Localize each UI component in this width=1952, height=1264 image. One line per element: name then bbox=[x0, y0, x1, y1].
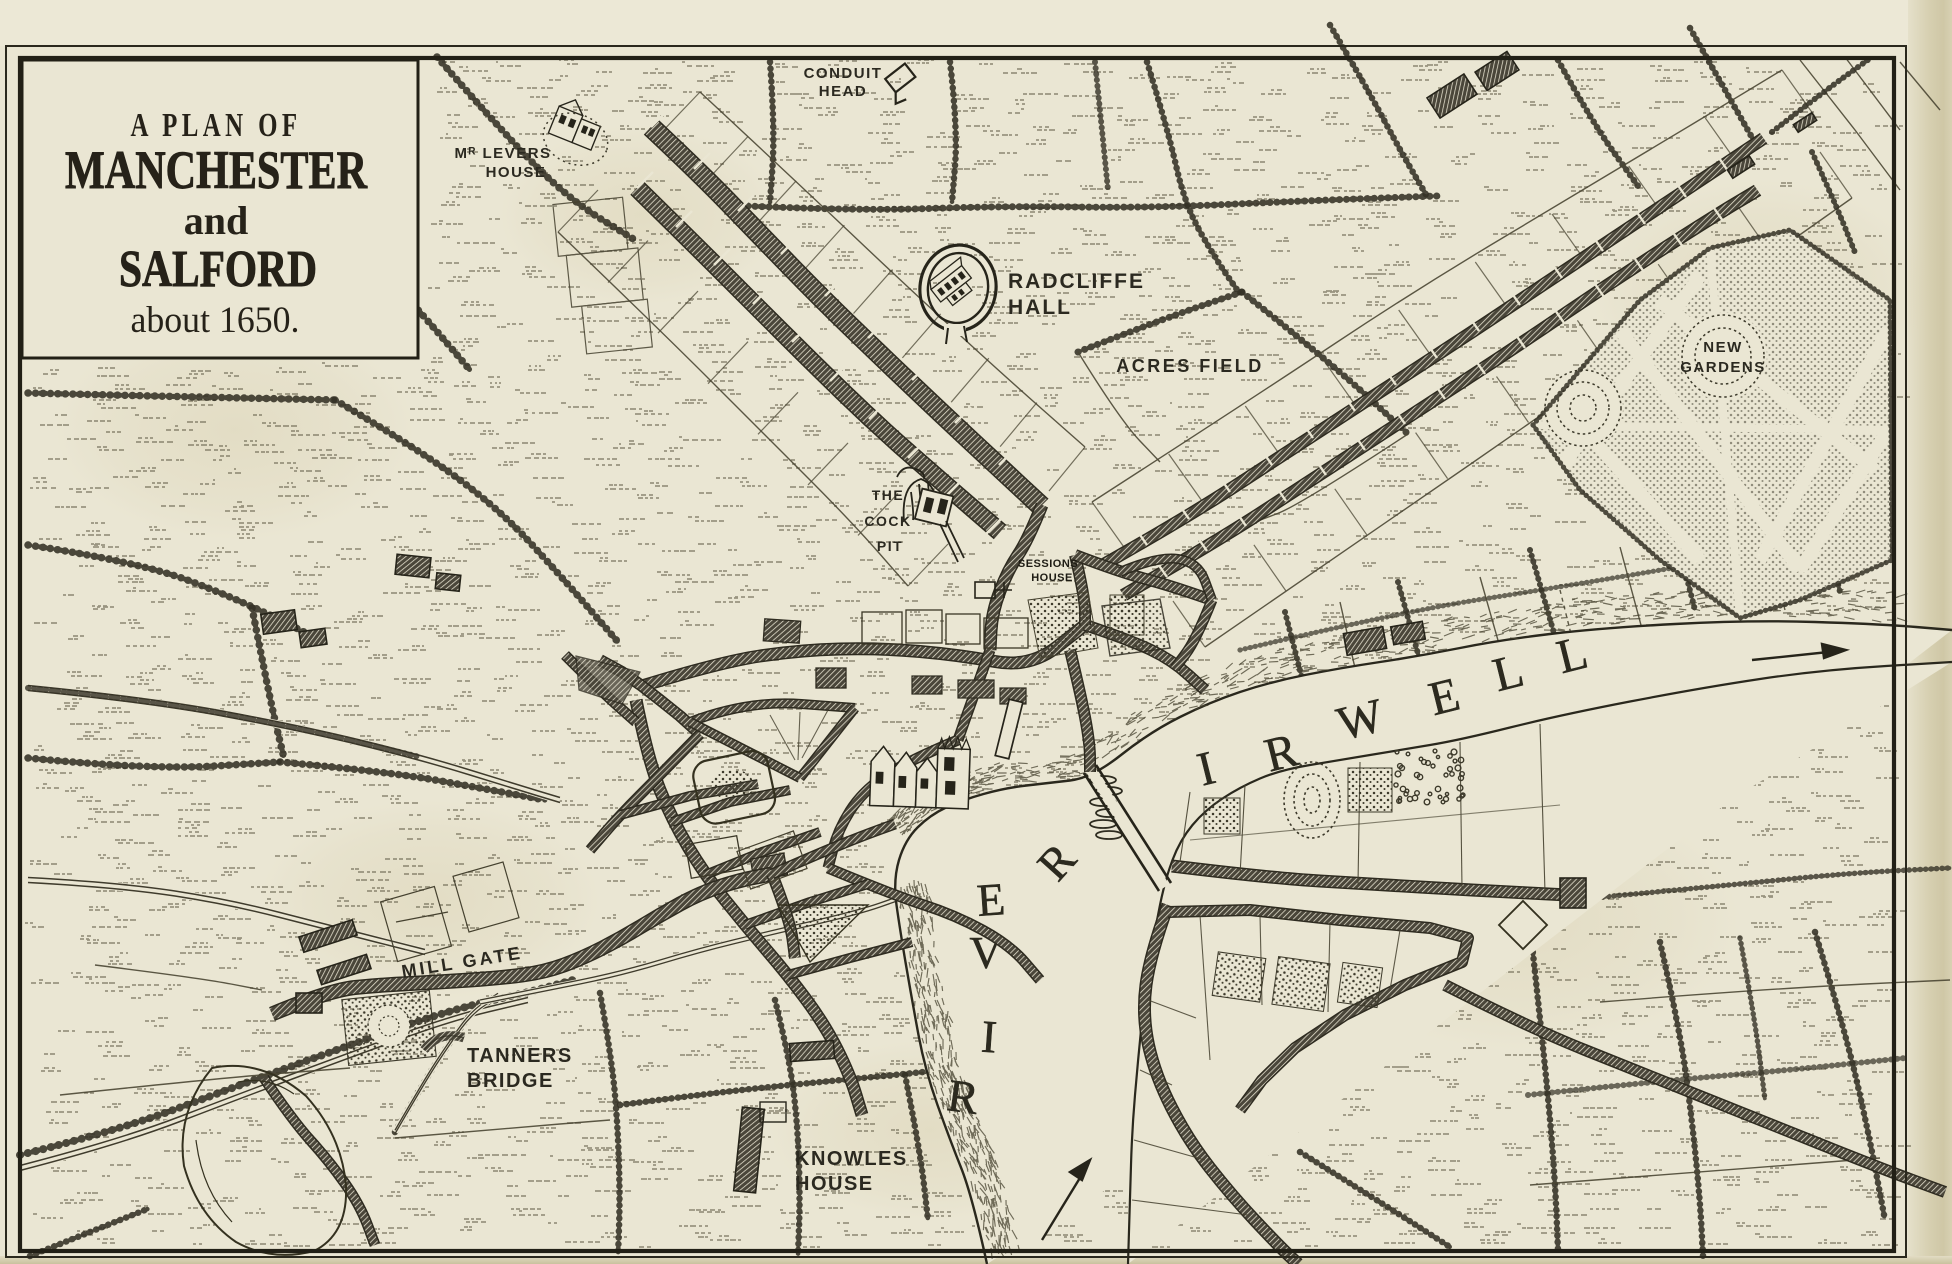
svg-text:SESSIONS: SESSIONS bbox=[1018, 558, 1078, 570]
svg-text:about 1650.: about 1650. bbox=[131, 300, 300, 341]
svg-text:BRIDGE: BRIDGE bbox=[467, 1070, 554, 1092]
svg-text:GARDENS: GARDENS bbox=[1680, 359, 1766, 376]
svg-text:HOUSE: HOUSE bbox=[1031, 572, 1073, 584]
svg-text:NEW: NEW bbox=[1703, 339, 1743, 356]
svg-text:HOUSE: HOUSE bbox=[795, 1173, 874, 1195]
svg-text:A PLAN OF: A PLAN OF bbox=[131, 107, 302, 144]
svg-text:THE: THE bbox=[872, 487, 905, 503]
svg-text:HOUSE: HOUSE bbox=[486, 164, 547, 181]
svg-text:HEAD: HEAD bbox=[819, 83, 868, 100]
svg-text:HALL: HALL bbox=[1008, 296, 1072, 319]
svg-text:MANCHESTER: MANCHESTER bbox=[65, 140, 368, 200]
svg-text:E: E bbox=[975, 873, 1007, 926]
svg-text:COCK: COCK bbox=[864, 513, 911, 529]
svg-text:PIT: PIT bbox=[877, 538, 903, 554]
svg-text:SALFORD: SALFORD bbox=[119, 241, 317, 298]
svg-text:CONDUIT: CONDUIT bbox=[804, 65, 883, 82]
svg-text:TANNERS: TANNERS bbox=[467, 1045, 573, 1067]
svg-text:KNOWLES: KNOWLES bbox=[795, 1148, 908, 1170]
svg-text:RADCLIFFE: RADCLIFFE bbox=[1008, 270, 1145, 293]
svg-text:ACRES FIELD: ACRES FIELD bbox=[1116, 356, 1264, 376]
svg-text:and: and bbox=[184, 198, 249, 243]
svg-text:Mᴿ LEVERS: Mᴿ LEVERS bbox=[454, 145, 551, 162]
